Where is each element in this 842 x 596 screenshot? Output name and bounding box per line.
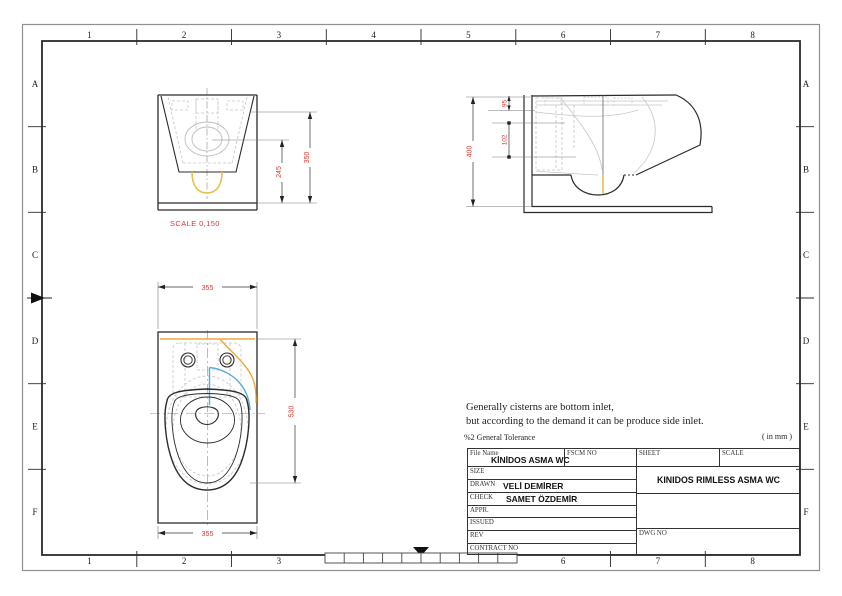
- tolerance-note: %2 General Tolerance: [464, 433, 535, 442]
- grid-row-label: E: [803, 421, 809, 431]
- note-line-2: but according to the demand it can be pr…: [466, 416, 704, 427]
- supply-curve-orange: [220, 339, 256, 403]
- plan-view: 355 355 530: [150, 282, 301, 539]
- contract-no-label: CONTRACT NO: [470, 545, 518, 552]
- sheet-label: SHEET: [639, 450, 660, 457]
- plan-dim-width-bottom: 355: [202, 531, 214, 538]
- check-label: CHECK: [470, 494, 493, 501]
- note-line-1: Generally cisterns are bottom inlet,: [466, 402, 614, 413]
- grid-row-label: F: [803, 507, 808, 517]
- drawing-title: KINIDOS RIMLESS ASMA WC: [636, 466, 801, 493]
- side-dim-inlet: 102: [502, 134, 509, 145]
- grid-row-label: E: [32, 421, 38, 431]
- grid-col-label: 2: [182, 30, 187, 40]
- appr-label: APPR.: [470, 507, 489, 514]
- scale-label: SCALE: [722, 450, 744, 457]
- dwg-no-label: DWG NO: [639, 530, 667, 537]
- grid-col-label: 8: [750, 30, 755, 40]
- grid-row-label: F: [32, 507, 37, 517]
- grid-col-label: 2: [182, 556, 187, 566]
- grid-row-label: A: [803, 79, 810, 89]
- file-name-value: KİNİDOS ASMA WC: [491, 455, 570, 465]
- grid-col-label: 4: [371, 30, 376, 40]
- grid-col-label: 8: [750, 556, 755, 566]
- grid-col-label: 3: [277, 30, 282, 40]
- grid-row-label: A: [32, 79, 39, 89]
- front-dim-overall-height: 350: [304, 152, 311, 164]
- grid-col-label: 6: [561, 556, 566, 566]
- drawn-value: VELİ DEMİRER: [503, 481, 563, 491]
- grid-row-label: B: [32, 165, 38, 175]
- grid-row-label: B: [803, 165, 809, 175]
- grid-row-label: C: [803, 250, 809, 260]
- grid-row-label: C: [32, 250, 38, 260]
- check-value: SAMET ÖZDEMİR: [506, 494, 577, 504]
- grid-row-label: D: [803, 336, 810, 346]
- units-note: ( in mm ): [762, 432, 792, 441]
- rev-label: REV: [470, 532, 484, 539]
- grid-row-label: D: [32, 336, 39, 346]
- front-scale-note: SCALE 0,150: [170, 219, 220, 228]
- grid-col-label: 1: [87, 30, 92, 40]
- side-dim-top-offset: 95: [502, 100, 509, 108]
- front-dim-rim-height: 245: [276, 166, 283, 178]
- grid-col-label: 3: [277, 556, 282, 566]
- grid-col-label: 7: [656, 30, 661, 40]
- grid-col-label: 5: [466, 30, 471, 40]
- front-view: 245 350 SCALE 0,150: [158, 88, 317, 228]
- grid-col-label: 6: [561, 30, 566, 40]
- cad-sheet: 1 2 3 4 5 6 7 8 1 2 3 6 7 8 A B C D E F …: [0, 0, 842, 596]
- side-view: 400 95 102: [466, 95, 712, 213]
- plan-dim-width-top: 355: [202, 285, 214, 292]
- issued-label: ISSUED: [470, 519, 494, 526]
- plan-dim-depth: 530: [289, 406, 296, 418]
- side-dim-overall: 400: [467, 146, 474, 158]
- grid-col-label: 1: [87, 556, 92, 566]
- centering-mark-left: [27, 293, 52, 304]
- size-label: SIZE: [470, 468, 484, 475]
- fscm-no-label: FSCM NO: [567, 450, 597, 457]
- title-block: File Name KİNİDOS ASMA WC FSCM NO SHEET …: [467, 448, 800, 555]
- grid-col-label: 7: [656, 556, 661, 566]
- drawn-label: DRAWN: [470, 481, 495, 488]
